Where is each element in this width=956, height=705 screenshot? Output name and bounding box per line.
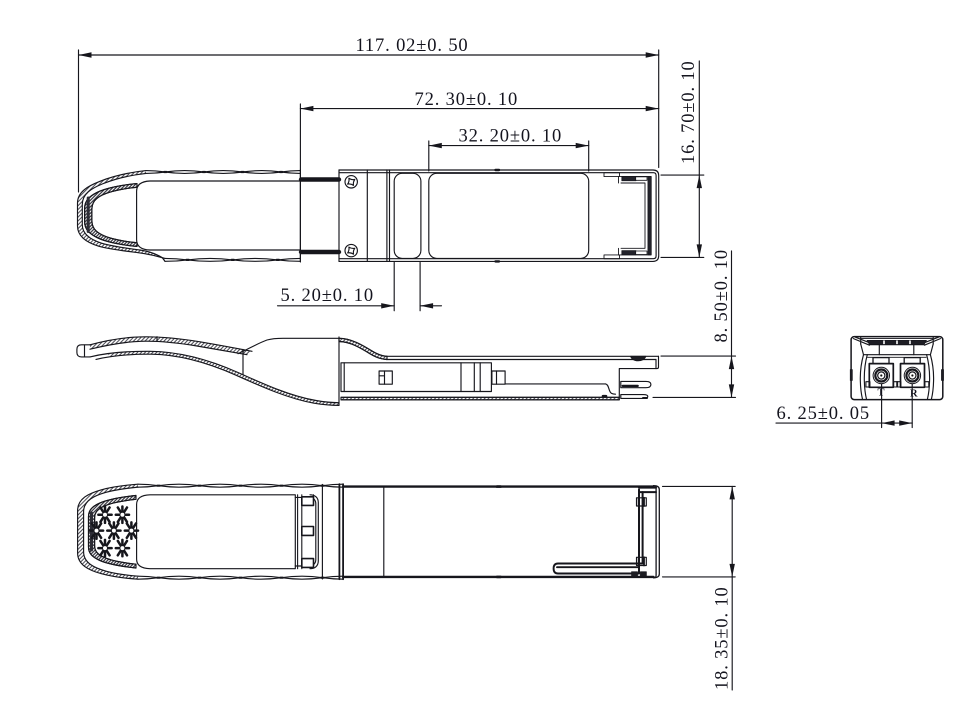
svg-text:32. 20±0. 10: 32. 20±0. 10 [459,126,563,146]
svg-text:8. 50±0. 10: 8. 50±0. 10 [712,249,732,343]
svg-text:5. 20±0. 10: 5. 20±0. 10 [281,286,375,306]
svg-text:T: T [878,388,885,399]
svg-text:16. 70±0. 10: 16. 70±0. 10 [679,60,699,164]
svg-text:117. 02±0. 50: 117. 02±0. 50 [356,36,469,56]
svg-text:R: R [910,389,918,400]
svg-text:72. 30±0. 10: 72. 30±0. 10 [415,90,519,110]
svg-text:6. 25±0. 05: 6. 25±0. 05 [777,404,871,424]
svg-text:18. 35±0. 10: 18. 35±0. 10 [713,586,733,690]
